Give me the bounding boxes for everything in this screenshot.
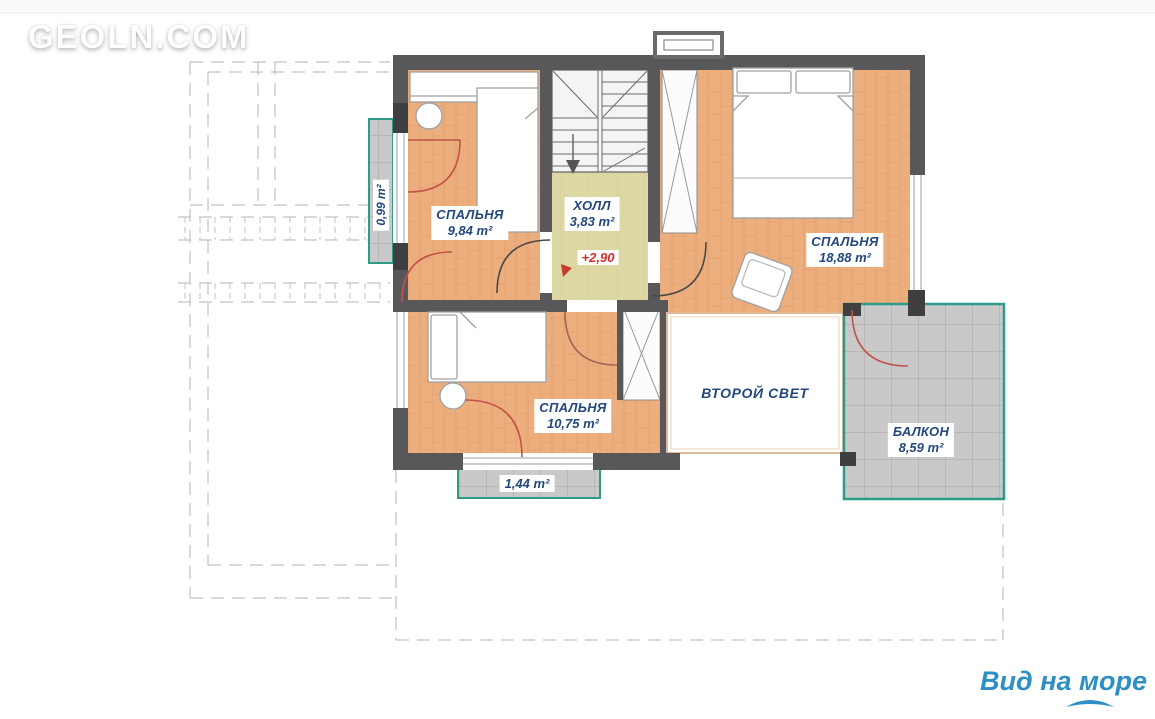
room-label-bedroom-bottom: СПАЛЬНЯ 10,75 m²	[534, 399, 611, 433]
dashed-stair-ticks	[185, 217, 380, 302]
room-label-balcony-left: 0,99 m²	[373, 179, 389, 230]
room-label-balcony-right: БАЛКОН 8,59 m²	[888, 423, 954, 457]
pillow-left	[737, 71, 791, 93]
top-strip	[0, 0, 1155, 13]
pillow-right	[796, 71, 850, 93]
room-area: 3,83 m²	[570, 214, 615, 230]
room-label-second-light: ВТОРОЙ СВЕТ	[696, 384, 813, 402]
floor-plan-canvas	[0, 0, 1155, 719]
room-label-bedroom-top-left: СПАЛЬНЯ 9,84 m²	[431, 206, 508, 240]
room-name: СПАЛЬНЯ	[436, 207, 503, 223]
sea-wave-icon	[1066, 700, 1114, 707]
chimney	[655, 33, 722, 57]
room-label-balcony-bottom: 1,44 m²	[500, 475, 555, 492]
room-name: ХОЛЛ	[570, 198, 615, 214]
void-shaft	[662, 70, 697, 233]
staircase	[552, 70, 648, 174]
room-area: 10,75 m²	[539, 416, 606, 432]
room-name: БАЛКОН	[893, 424, 949, 440]
bedside-table	[440, 383, 466, 409]
pouf-top-left	[416, 103, 442, 129]
sea-view-caption: Вид на море	[980, 666, 1147, 697]
room-label-bedroom-right: СПАЛЬНЯ 18,88 m²	[806, 233, 883, 267]
room-name: СПАЛЬНЯ	[811, 234, 878, 250]
elevation-mark-label: +2,90	[578, 250, 619, 265]
second-light-area	[667, 313, 843, 453]
room-label-hall: ХОЛЛ 3,83 m²	[565, 197, 620, 231]
room-area: 8,59 m²	[893, 440, 949, 456]
room-area: 9,84 m²	[436, 223, 503, 239]
room-area: 18,88 m²	[811, 250, 878, 266]
room-name: СПАЛЬНЯ	[539, 400, 606, 416]
wardrobe	[623, 307, 660, 400]
pillow-bottom-bed	[431, 315, 457, 379]
geoln-watermark: GEOLN.COM	[28, 18, 250, 56]
floor-plan-page: СПАЛЬНЯ 9,84 m² ХОЛЛ 3,83 m² +2,90 СПАЛЬ…	[0, 0, 1155, 719]
